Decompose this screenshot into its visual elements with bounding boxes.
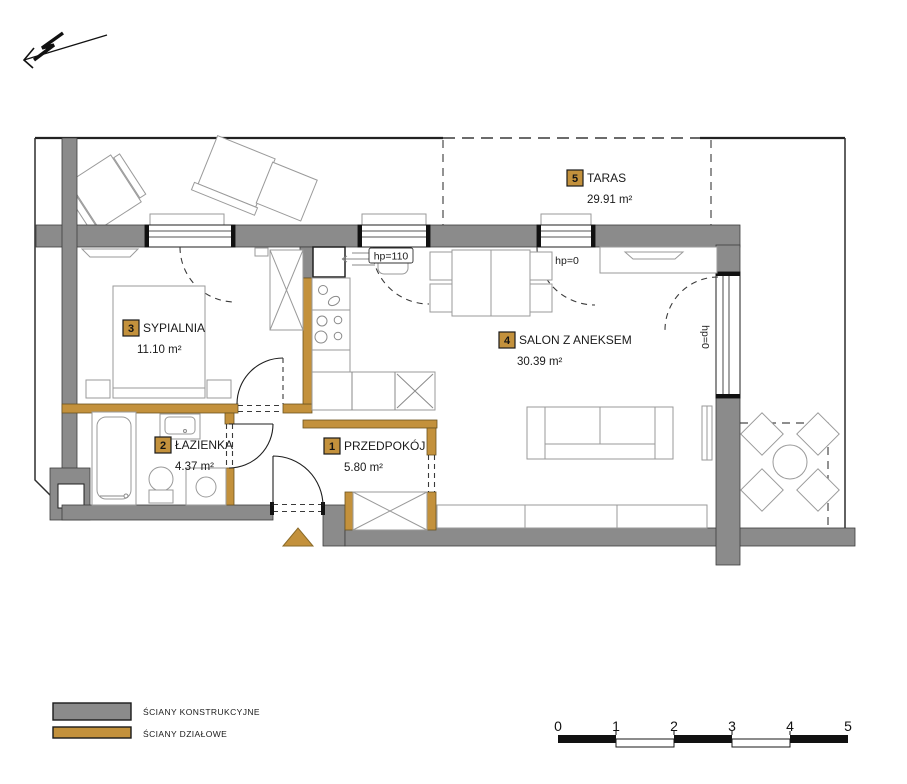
entrance-arrow — [283, 528, 313, 546]
room-name: SYPIALNIA — [143, 321, 205, 335]
legend-label-partition: ŚCIANY DZIAŁOWE — [143, 728, 227, 739]
chair — [430, 252, 452, 280]
fridge-x — [397, 374, 433, 408]
round-table — [773, 445, 807, 479]
wall-top-d — [595, 225, 740, 247]
scale-bar: 0 1 2 3 4 5 — [554, 718, 852, 747]
scale-tick-5: 5 — [844, 718, 852, 734]
counter-dividers — [352, 372, 395, 410]
wall-bedroom-south-b — [283, 404, 312, 413]
legend-swatch-partition — [53, 727, 131, 738]
legend-swatch-structural — [53, 703, 131, 720]
room-number: 1 — [329, 441, 335, 453]
kitchen-fixtures — [312, 247, 435, 410]
wall-top-b — [235, 225, 358, 247]
wall-kitchen-hall — [303, 420, 437, 428]
bathroom-door-swing — [229, 424, 273, 468]
room-name: PRZEDPOKÓJ — [344, 438, 425, 453]
salon-furniture — [430, 247, 717, 528]
basin-symbol — [327, 295, 341, 308]
nightstand-left — [86, 380, 110, 398]
wall-bedroom-kitchen — [303, 278, 312, 404]
room-name: TARAS — [587, 171, 626, 185]
terrace-left-edge — [35, 138, 62, 507]
room-label-przedpokoj: 1 PRZEDPOKÓJ 5.80 m² — [324, 438, 425, 474]
scale-segment-black — [790, 735, 848, 743]
entrance-door-swing — [273, 456, 323, 506]
room-area: 11.10 m² — [137, 344, 182, 356]
scale-tick-0: 0 — [554, 718, 562, 734]
toilet-base — [149, 490, 173, 503]
wall-right-corner — [716, 245, 740, 272]
sink-arrow — [342, 256, 360, 262]
side-terrace-door-swing — [665, 277, 718, 330]
scale-segment-white — [732, 739, 790, 747]
room-area: 30.39 m² — [517, 356, 563, 368]
hp110-label: hp=110 — [374, 251, 409, 263]
room-number: 3 — [128, 323, 134, 335]
kitchen-counter-bottom — [312, 372, 435, 410]
wall-bottom-salon — [345, 528, 855, 546]
wall-top-a — [36, 225, 145, 247]
vent-shaft — [313, 247, 345, 277]
room-number: 4 — [504, 335, 511, 347]
kitchen-counter-left — [312, 278, 350, 372]
bedroom-door-opening — [238, 406, 283, 412]
north-arrow-icon — [24, 33, 107, 68]
hp0-label-balcony: hp=0 — [555, 255, 579, 267]
kitchen-window — [358, 214, 430, 247]
bedroom-door-swing — [237, 358, 283, 404]
entrance-door-opening — [273, 505, 323, 512]
wall-top-c — [430, 225, 537, 247]
room-label-taras: 5 TARAS 29.91 m² — [567, 170, 633, 206]
room-area: 5.80 m² — [344, 462, 383, 474]
nightstand-right — [207, 380, 231, 398]
wall-bottom-bath — [62, 505, 273, 520]
north-arrow-glyph — [34, 33, 63, 60]
room-number: 5 — [572, 173, 578, 185]
wall-shelf — [255, 248, 268, 256]
bedroom-window — [145, 214, 235, 247]
hp0-label-side: hp=0 — [699, 325, 711, 349]
room-area: 29.91 m² — [587, 194, 633, 206]
washing-machine — [186, 468, 226, 505]
chair — [530, 252, 552, 280]
bathtub — [92, 412, 136, 505]
scale-segment-black — [674, 735, 732, 743]
wall-hall-salon-b — [427, 492, 436, 530]
wall-bedroom-south — [62, 404, 238, 413]
floor-plan-drawing: 1 PRZEDPOKÓJ 5.80 m² 2 ŁAZIENKA 4.37 m² … — [0, 0, 907, 784]
balcony-door — [537, 214, 595, 247]
scale-segment-white — [616, 739, 674, 747]
chair — [530, 284, 552, 312]
terrace-table-set — [741, 413, 839, 511]
chair — [430, 284, 452, 312]
scale-ticks — [616, 731, 790, 735]
room-label-salon: 4 SALON Z ANEKSEM 30.39 m² — [499, 332, 632, 368]
wall-left — [62, 138, 77, 508]
faucet-symbol — [319, 286, 328, 295]
legend: ŚCIANY KONSTRUKCYJNE ŚCIANY DZIAŁOWE — [53, 703, 260, 739]
hall-salon-opening — [429, 455, 435, 492]
scale-segment-black — [558, 735, 616, 743]
radiator-bedroom — [82, 249, 138, 257]
wall-right-bottom — [716, 398, 740, 565]
side-terrace-door-window — [716, 272, 740, 398]
tv-cabinet — [600, 247, 717, 273]
wall-wardrobe-pillar — [345, 492, 353, 530]
room-name: SALON Z ANEKSEM — [519, 333, 632, 347]
wall-entry-step — [323, 505, 345, 546]
hall-furniture — [353, 492, 427, 530]
toilet-bowl — [149, 467, 173, 491]
sideboard — [437, 505, 707, 528]
hob — [312, 310, 350, 350]
wall-bath-hall-a — [225, 413, 234, 424]
wall-niche — [58, 484, 84, 508]
tv — [625, 252, 683, 259]
bathroom-furniture — [92, 412, 226, 505]
floor-plan-page: 1 PRZEDPOKÓJ 5.80 m² 2 ŁAZIENKA 4.37 m² … — [0, 0, 907, 784]
room-name: ŁAZIENKA — [175, 438, 233, 452]
bed — [113, 286, 205, 398]
room-number: 2 — [160, 440, 166, 452]
room-area: 4.37 m² — [175, 461, 214, 473]
wall-hall-salon-a — [427, 428, 436, 455]
legend-label-structural: ŚCIANY KONSTRUKCYJNE — [143, 706, 260, 717]
